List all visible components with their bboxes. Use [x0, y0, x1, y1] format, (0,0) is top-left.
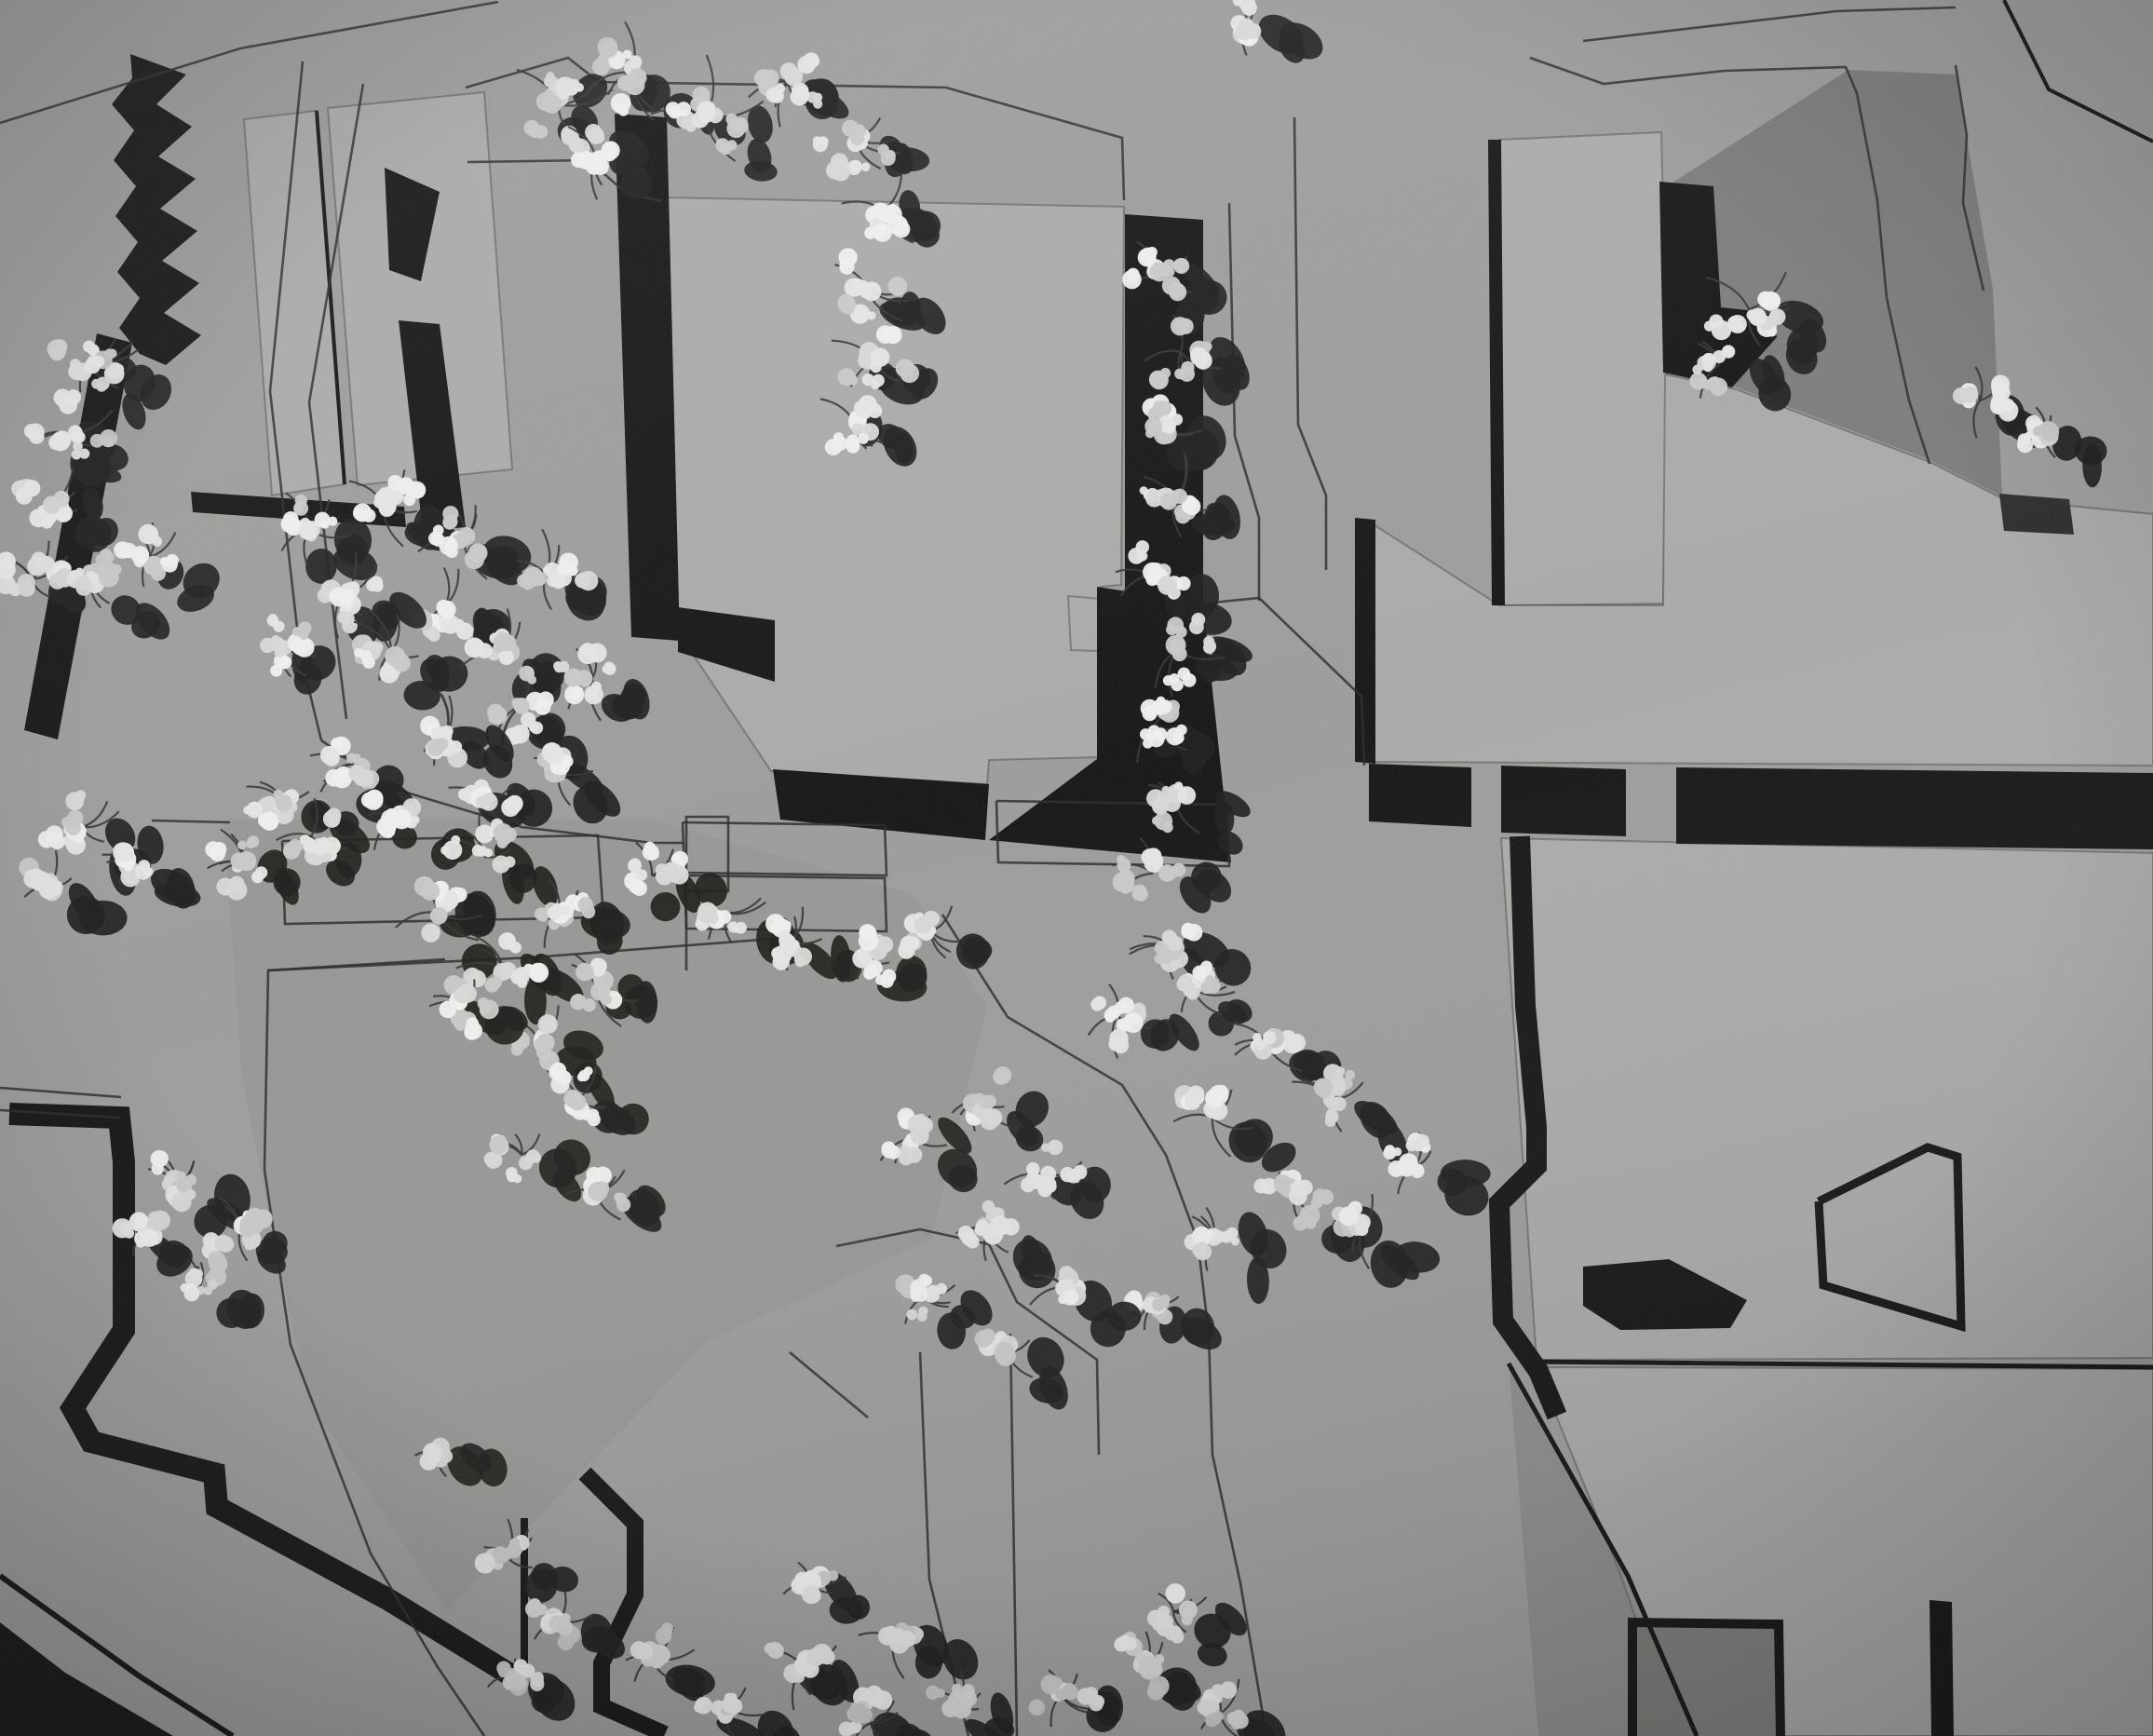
vignette — [0, 0, 2153, 1736]
model-photo — [0, 0, 2153, 1736]
model-photo-canvas — [0, 0, 2153, 1736]
